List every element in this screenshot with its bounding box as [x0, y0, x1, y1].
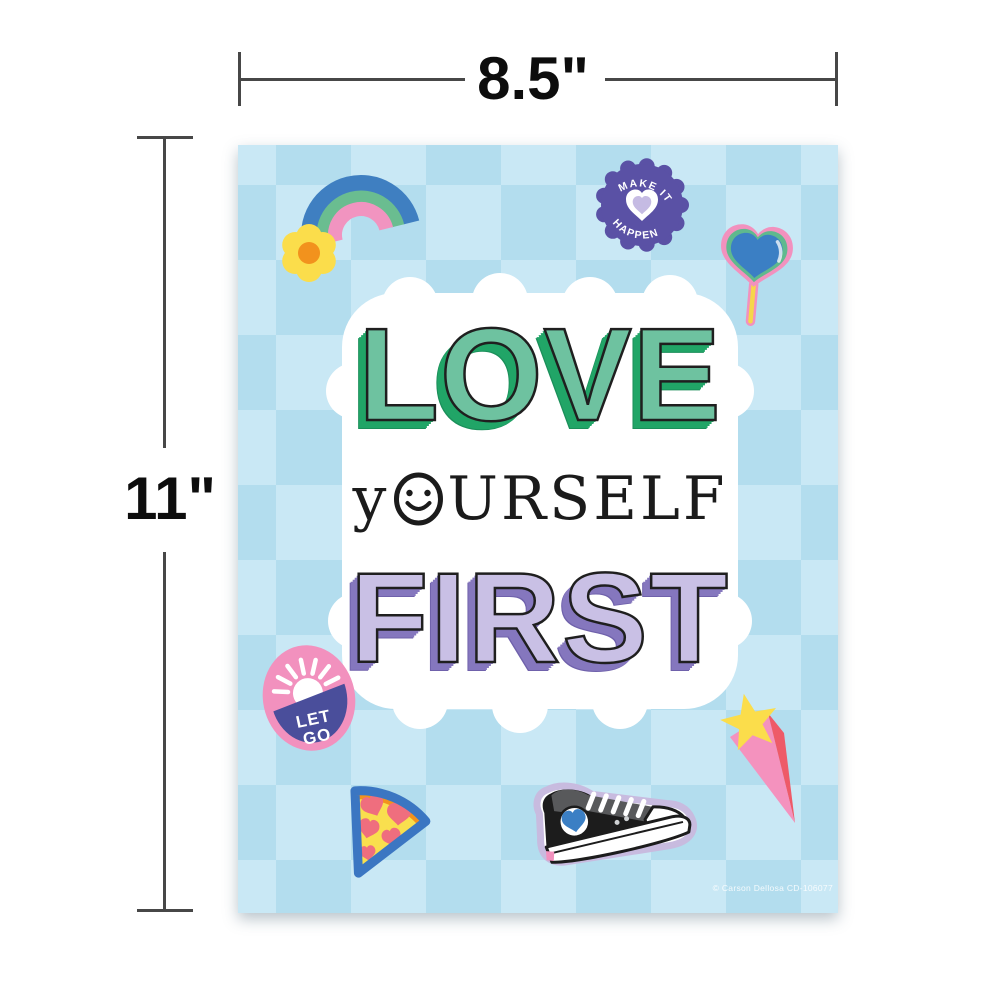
width-label: 8.5" — [477, 49, 589, 109]
height-line-top — [163, 139, 166, 448]
height-line-bottom — [163, 552, 166, 909]
headline-line2-prefix: y — [352, 469, 389, 529]
shooting-star-sticker — [706, 683, 821, 831]
smiley-o-icon — [392, 471, 444, 527]
rainbow-flower-sticker — [276, 171, 441, 289]
height-dimension: 11" — [137, 136, 193, 912]
width-line-right — [605, 78, 835, 81]
width-dimension: 8.5" — [238, 52, 838, 106]
width-line-left — [241, 78, 465, 81]
poster: MAKE IT HAPPEN LOVE y — [238, 145, 838, 913]
headline-sticker-cloud: LOVE y urself FIRST — [342, 293, 738, 709]
headline-line2: y urself — [352, 469, 727, 529]
width-right-tick — [835, 52, 838, 106]
height-label: 11" — [124, 469, 216, 529]
headline-line2-suffix: urself — [447, 469, 727, 529]
headline-line3: FIRST — [350, 555, 730, 683]
headline-line1: LOVE — [358, 309, 721, 441]
let-go-badge: LET GO — [258, 641, 360, 755]
make-it-happen-badge: MAKE IT HAPPEN — [590, 153, 694, 257]
height-bottom-tick — [137, 909, 193, 912]
sneaker-sticker — [528, 761, 703, 881]
copyright-text: © Carson Dellosa CD-106077 — [713, 883, 833, 893]
pizza-slice-sticker — [330, 765, 445, 887]
